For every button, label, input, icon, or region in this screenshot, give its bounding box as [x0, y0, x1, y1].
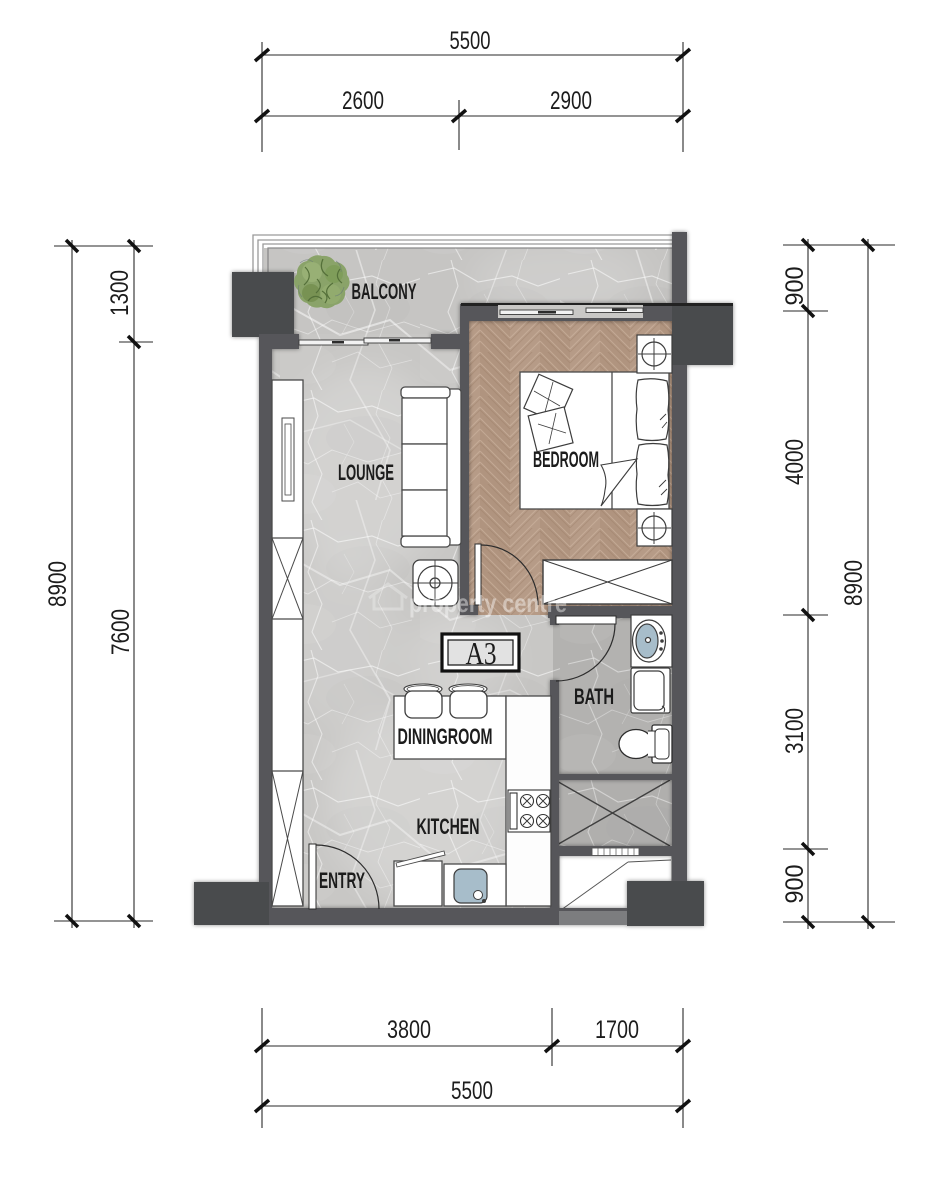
svg-text:900: 900 — [781, 267, 809, 306]
svg-text:BALCONY: BALCONY — [352, 279, 417, 304]
svg-text:BEDROOM: BEDROOM — [533, 447, 599, 472]
svg-text:8900: 8900 — [44, 561, 72, 607]
svg-text:3100: 3100 — [781, 708, 809, 754]
svg-text:LOUNGE: LOUNGE — [338, 460, 394, 485]
svg-text:4000: 4000 — [781, 439, 809, 485]
svg-text:property centre: property centre — [409, 588, 567, 618]
svg-text:5500: 5500 — [450, 27, 491, 55]
svg-text:A3: A3 — [466, 635, 497, 671]
svg-text:900: 900 — [781, 865, 809, 904]
svg-text:8900: 8900 — [840, 560, 868, 606]
svg-text:7600: 7600 — [107, 609, 135, 655]
svg-text:2900: 2900 — [550, 87, 592, 115]
svg-text:3800: 3800 — [387, 1016, 431, 1044]
svg-text:2600: 2600 — [342, 87, 384, 115]
svg-text:BATH: BATH — [574, 684, 614, 709]
svg-text:1700: 1700 — [595, 1016, 639, 1044]
svg-text:1300: 1300 — [106, 270, 134, 316]
svg-text:ENTRY: ENTRY — [319, 868, 365, 893]
svg-text:DININGROOM: DININGROOM — [398, 724, 493, 749]
svg-text:KITCHEN: KITCHEN — [417, 814, 480, 839]
svg-text:5500: 5500 — [451, 1077, 493, 1105]
